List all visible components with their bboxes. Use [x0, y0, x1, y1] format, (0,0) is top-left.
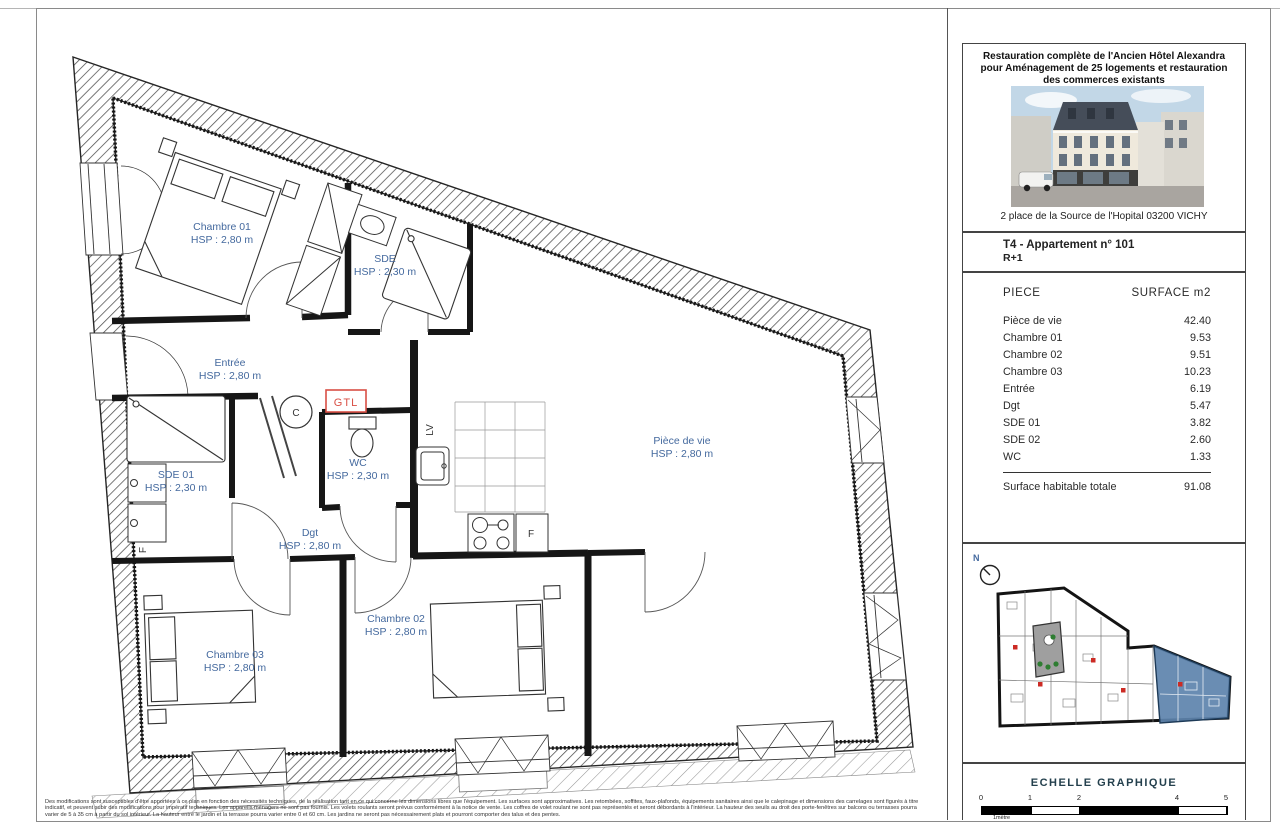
- disclaimer: Des modifications sont susceptibles d'êt…: [45, 799, 948, 818]
- table-row: Chambre 019.53: [1003, 332, 1211, 349]
- building-footprint: [998, 588, 1230, 726]
- table-total-row: Surface habitable totale 91.08: [963, 473, 1245, 493]
- entry-door: [90, 333, 188, 400]
- floor-plan: C GTL LV F F Chambre 01HSP : 2,80 m SDEH…: [0, 0, 950, 826]
- total-label: Surface habitable totale: [1003, 481, 1116, 493]
- room-label-wc: WCHSP : 2,30 m: [327, 457, 390, 482]
- project-title: Restauration complète de l'Ancien Hôtel …: [963, 44, 1245, 87]
- room-label-chambre-03: Chambre 03HSP : 2,80 m: [204, 649, 267, 674]
- surface-table-rows: Pièce de vie42.40 Chambre 019.53 Chambre…: [963, 299, 1245, 468]
- surface-table: PIECE SURFACE m2 Pièce de vie42.40 Chamb…: [962, 272, 1246, 543]
- scale-title: ECHELLE GRAPHIQUE: [963, 764, 1245, 789]
- key-plan-block: N: [962, 543, 1246, 763]
- north-label: N: [973, 553, 980, 563]
- scale-tick: 1: [1028, 793, 1032, 802]
- room-label-dgt: DgtHSP : 2,80 m: [279, 527, 342, 552]
- drawing-sheet: C GTL LV F F Chambre 01HSP : 2,80 m SDEH…: [0, 0, 1280, 826]
- room-label-chambre-01: Chambre 01HSP : 2,80 m: [191, 221, 254, 246]
- dishwasher-label: LV: [425, 424, 436, 436]
- water-heater-label: C: [292, 408, 299, 419]
- scale-tick: 5: [1224, 793, 1228, 802]
- highlighted-unit: [1154, 646, 1230, 723]
- table-row: Dgt5.47: [1003, 400, 1211, 417]
- scale-tick: 4: [1175, 793, 1179, 802]
- window-bottom-piece-de-vie: [737, 721, 835, 761]
- appliance-label: F: [138, 547, 149, 553]
- room-label-chambre-02: Chambre 02HSP : 2,80 m: [365, 613, 428, 638]
- total-value: 91.08: [1184, 481, 1211, 493]
- room-label-piece-de-vie: Pièce de vieHSP : 2,80 m: [651, 435, 714, 460]
- table-row: SDE 013.82: [1003, 417, 1211, 434]
- table-row: Chambre 0310.23: [1003, 366, 1211, 383]
- scale-block: ECHELLE GRAPHIQUE 0 1 2 4 5 1mètre: [962, 763, 1246, 820]
- fridge-label: F: [528, 529, 534, 540]
- col-surface: SURFACE m2: [1132, 287, 1212, 299]
- title-block: Restauration complète de l'Ancien Hôtel …: [962, 43, 1246, 232]
- table-row: SDE 022.60: [1003, 434, 1211, 451]
- toilet-wc: [349, 417, 376, 457]
- window-bottom-ch02: [455, 735, 550, 775]
- building-photo: [1011, 86, 1204, 207]
- scale-tick: 0: [979, 793, 983, 802]
- project-address: 2 place de la Source de l'Hopital 03200 …: [963, 211, 1245, 222]
- apartment-floor: R+1: [963, 251, 1245, 264]
- room-label-entree: EntréeHSP : 2,80 m: [199, 357, 262, 382]
- table-row: Chambre 029.51: [1003, 349, 1211, 366]
- table-row: Entrée6.19: [1003, 383, 1211, 400]
- disclaimer-line-2: indicatif, et peuvent subir des modifica…: [45, 805, 948, 811]
- apartment-id-block: T4 - Appartement n° 101 R+1: [962, 232, 1246, 272]
- sink-sde: [349, 204, 397, 245]
- project-title-line-1: Restauration complète de l'Ancien Hôtel …: [963, 51, 1245, 63]
- project-title-line-2: pour Aménagement de 25 logements et rest…: [963, 63, 1245, 75]
- gtl-box: GTL: [326, 390, 366, 412]
- scale-bar: [981, 806, 1228, 815]
- north-arrow-icon: [981, 566, 1000, 585]
- table-row: Pièce de vie42.40: [1003, 315, 1211, 332]
- window-bottom-ch03: [192, 748, 287, 788]
- kitchen-tiles: [455, 402, 545, 512]
- surface-table-header: PIECE SURFACE m2: [963, 273, 1245, 299]
- shower-sde-01: [127, 396, 225, 462]
- col-piece: PIECE: [1003, 287, 1041, 299]
- key-plan: N: [963, 544, 1245, 762]
- bed-chambre-02: [430, 586, 564, 715]
- scale-unit-label: 1mètre: [993, 815, 1010, 821]
- table-row: WC1.33: [1003, 451, 1211, 468]
- gtl-label: GTL: [334, 397, 358, 409]
- scale-tick: 2: [1077, 793, 1081, 802]
- water-heater: C: [280, 396, 312, 428]
- window-right-upper: [846, 397, 884, 463]
- apartment-title: T4 - Appartement n° 101: [963, 233, 1245, 251]
- disclaimer-line-3: varier de 5 à 35 cm à partir du sol inté…: [45, 812, 948, 818]
